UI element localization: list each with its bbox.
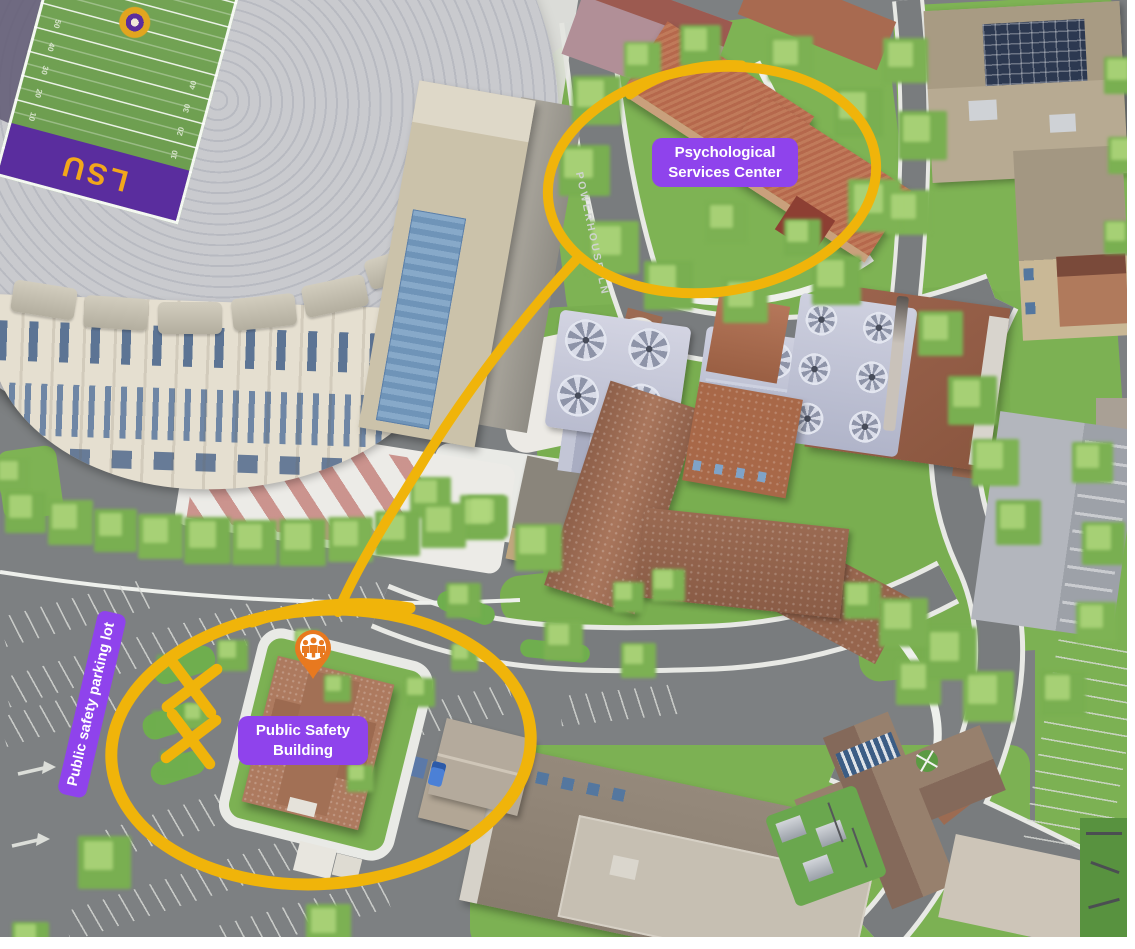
campus-map-page: 50 40 30 20 10 40 30 20 10 LSU (0, 0, 1135, 949)
label-line: Services Center (654, 163, 796, 183)
fan-icon (803, 302, 839, 338)
yard-number: 20 (33, 88, 44, 99)
transformer-box (775, 815, 806, 843)
trees-highlight-layer (0, 0, 1, 1)
industrial-building (971, 411, 1127, 639)
turbine-blade (920, 750, 934, 772)
label-line: Psychological (654, 143, 796, 163)
pipes (1060, 433, 1127, 628)
yard-number: 40 (188, 80, 199, 91)
playground (1080, 818, 1127, 937)
pavement-arrow-icon (12, 840, 38, 846)
transformer-box (815, 820, 846, 848)
campus-3d-map[interactable]: 50 40 30 20 10 40 30 20 10 LSU (0, 0, 1127, 937)
roof-ridge (437, 753, 527, 778)
road (906, 0, 915, 295)
tiger-logo (114, 2, 156, 44)
stadium-roof-pod (231, 293, 298, 332)
powerhouse-center-block (682, 382, 803, 499)
yard-number: 10 (27, 111, 38, 122)
rooftop-unit (1049, 113, 1076, 132)
rooftop-unit (968, 100, 997, 121)
yard-number: 10 (169, 149, 180, 160)
rooftop-unit (609, 855, 639, 880)
fan-icon (796, 351, 832, 387)
yard-number: 50 (52, 18, 63, 29)
building (1056, 253, 1127, 327)
play-structure (1090, 861, 1119, 874)
window-row (692, 460, 780, 485)
label-line: Public Safety (240, 721, 366, 741)
wind-turbine-icon (916, 750, 938, 772)
fan-icon (854, 359, 890, 395)
fan-icon (562, 316, 609, 363)
roof-band (1056, 253, 1126, 277)
fan-icon (847, 409, 883, 445)
label-psych-services-center[interactable]: Psychological Services Center (652, 138, 798, 187)
endzone-lsu-text: LSU (56, 147, 131, 198)
fan-icon (554, 372, 601, 419)
page-margin (0, 937, 1135, 949)
play-structure (1086, 832, 1122, 835)
pavement-arrow-icon (36, 833, 50, 846)
fan-icon (625, 325, 672, 372)
powerhouse-roof-box (706, 294, 790, 383)
solar-panel (982, 19, 1087, 86)
transformer-box (802, 854, 833, 882)
label-public-safety-building[interactable]: Public Safety Building (238, 716, 368, 765)
utility-pole (851, 828, 867, 868)
yard-number: 40 (45, 42, 56, 53)
page-margin (1127, 0, 1135, 949)
label-line: Building (240, 741, 366, 761)
play-structure (1088, 898, 1120, 909)
yard-number: 30 (39, 65, 50, 76)
yard-number: 30 (181, 103, 192, 114)
pavement-arrow-icon (42, 761, 56, 774)
stadium-roof-pod (158, 302, 222, 334)
stadium-roof-pod (83, 295, 149, 331)
pavement-arrow-icon (18, 768, 44, 774)
yard-number: 20 (175, 126, 186, 137)
